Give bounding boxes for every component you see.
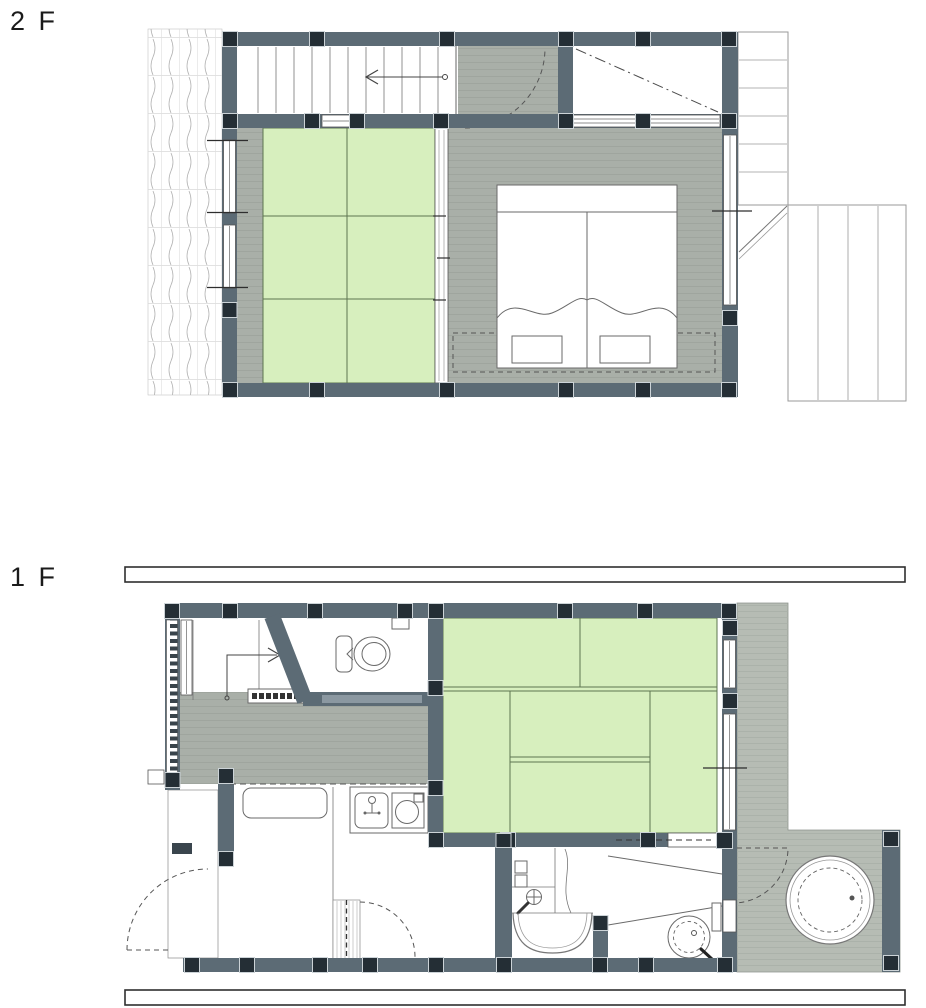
floor2-label: 2 F bbox=[10, 6, 58, 36]
outdoor-bathtub bbox=[786, 856, 874, 944]
deck-1f bbox=[733, 603, 900, 972]
plan-drawing: 2 F bbox=[0, 0, 926, 1008]
entry-step bbox=[148, 770, 164, 784]
closet bbox=[573, 46, 720, 114]
balcony-deck bbox=[788, 205, 906, 401]
balcony bbox=[738, 32, 906, 401]
towel-rail bbox=[712, 903, 721, 931]
site-wall-top bbox=[125, 567, 905, 582]
deck-door bbox=[723, 900, 736, 932]
bathroom bbox=[512, 847, 593, 955]
toilet-shelf bbox=[392, 618, 409, 629]
tatami-room-1f bbox=[443, 618, 717, 833]
entry-porch bbox=[168, 790, 218, 958]
stair-hall-2f bbox=[237, 46, 458, 114]
site-wall-bottom bbox=[125, 990, 905, 1005]
floor1-label: 1 F bbox=[10, 562, 58, 592]
floor2-plan: 2 F bbox=[10, 6, 906, 401]
bed-pillow-right bbox=[600, 336, 650, 363]
pocket-door bbox=[333, 900, 360, 962]
floor1-plan: 1 F bbox=[10, 562, 905, 1005]
bed-pillow-left bbox=[512, 336, 562, 363]
tatami-mats-2f bbox=[263, 128, 435, 383]
floor-plan-sheet: 2 F bbox=[0, 0, 926, 1008]
bench bbox=[243, 788, 327, 818]
fusuma-doors bbox=[433, 128, 450, 383]
corridor-door-swing bbox=[360, 902, 415, 957]
double-bed bbox=[497, 185, 677, 368]
balcony-slope-line bbox=[739, 206, 787, 252]
